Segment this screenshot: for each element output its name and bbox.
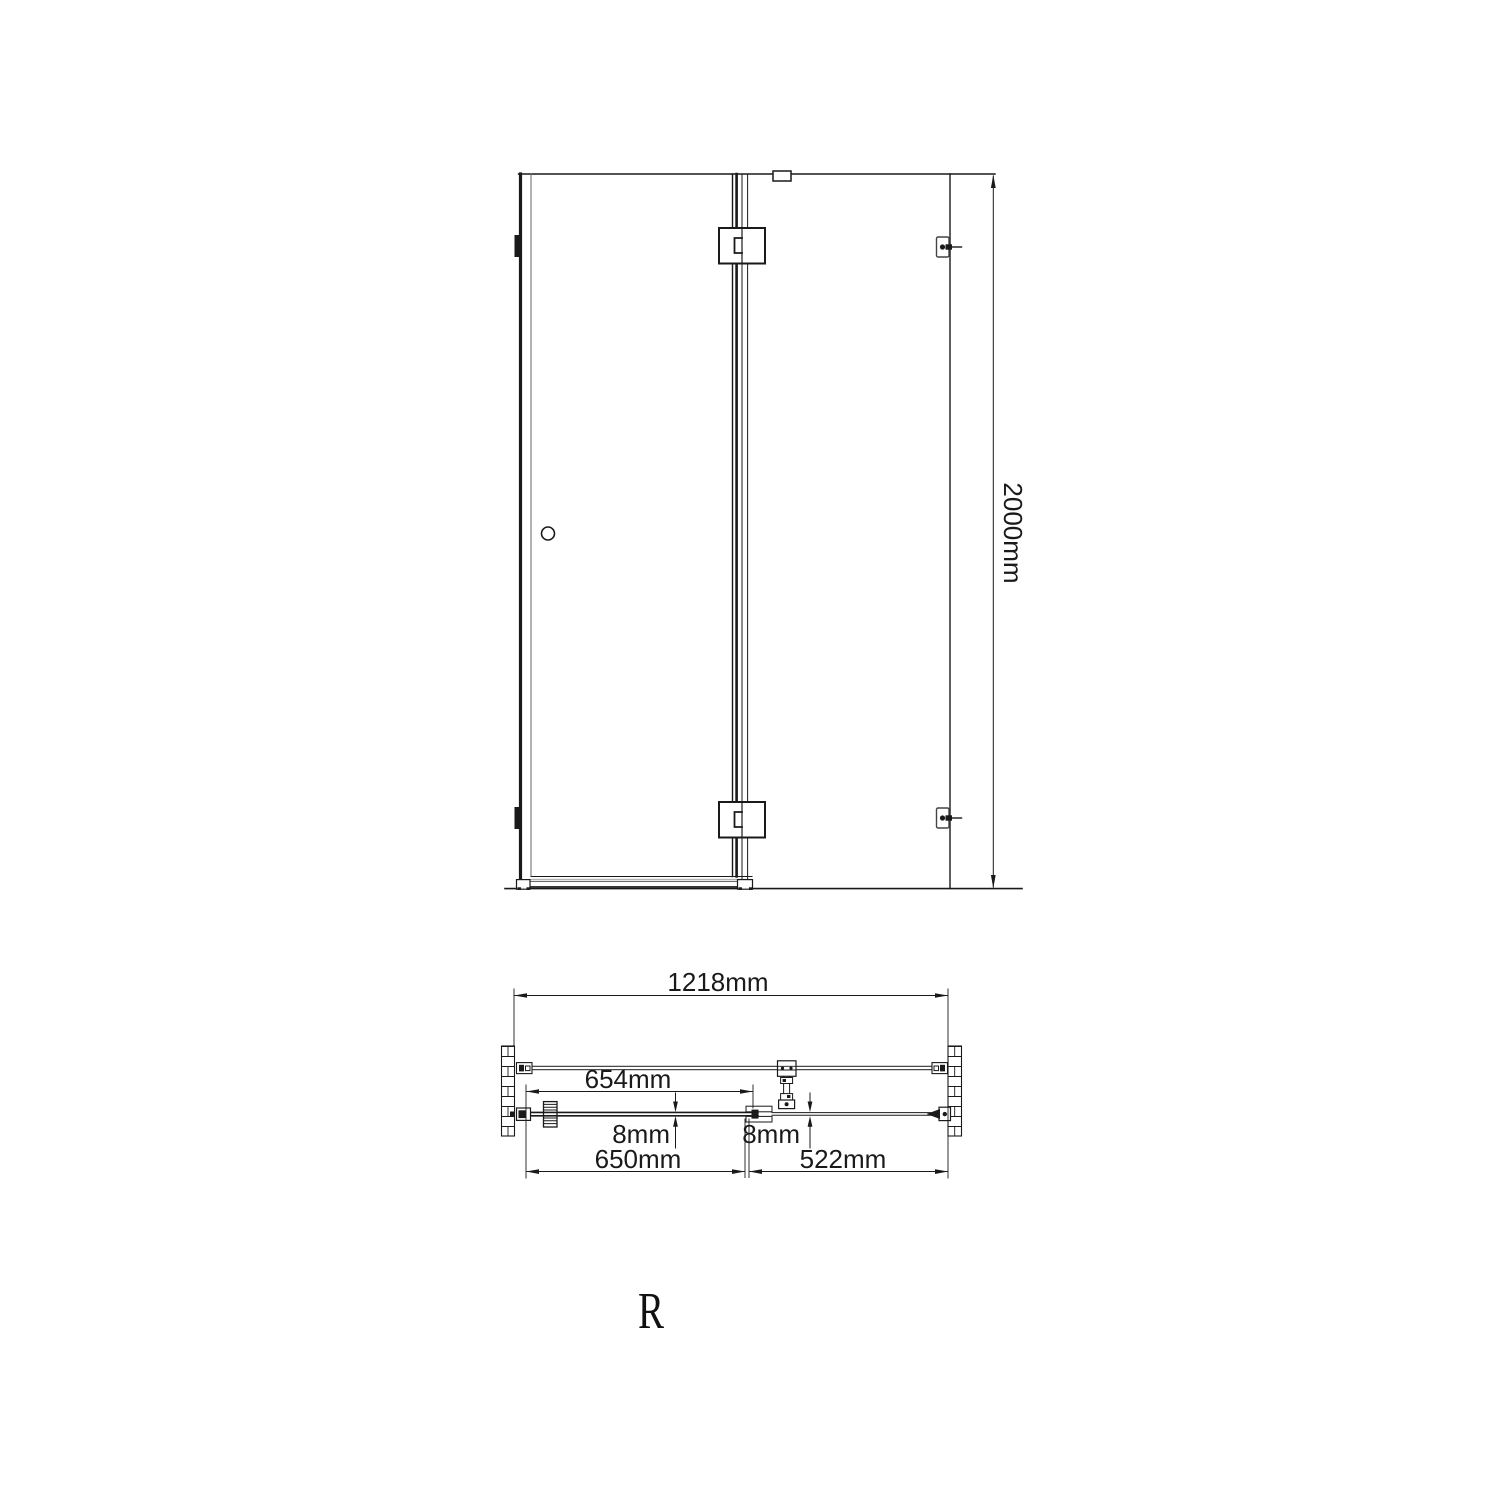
top-hinge	[719, 228, 765, 264]
side-panel-width-label: 522mm	[800, 1144, 887, 1174]
orientation-label: R	[638, 1282, 664, 1340]
height-dimension-label: 2000mm	[998, 482, 1028, 583]
technical-drawing-page: 2000mm	[0, 0, 1500, 1500]
left-wall-section	[502, 1046, 515, 1136]
panel-wall-bracket-bottom	[937, 808, 962, 828]
door-glass-plan	[531, 1112, 759, 1115]
door-handle-knob	[542, 527, 555, 540]
wall-profile-fixing-top	[515, 235, 521, 257]
right-wall-section	[948, 1046, 962, 1136]
bottom-hinge	[719, 802, 765, 838]
panel-glass-plan	[772, 1113, 931, 1116]
plan-view: 1218mm 654mm 8mm 8mm	[502, 967, 962, 1178]
support-bar-glass-connector	[778, 1061, 797, 1109]
door-handle-plan	[544, 1102, 558, 1127]
front-elevation-view: 2000mm	[505, 171, 1028, 890]
hinge-offset-label: 654mm	[585, 1064, 672, 1094]
panel-glass-thickness-label: 8mm	[742, 1119, 800, 1149]
support-bar-wall-bracket-left	[517, 1063, 533, 1074]
wall-profile-fixing-bottom	[515, 807, 521, 829]
overall-width-label: 1218mm	[667, 967, 768, 997]
panel-wall-bracket-plan	[927, 1107, 951, 1120]
support-bar-end-clip	[773, 171, 791, 181]
shower-enclosure-technical-drawing: 2000mm	[0, 0, 1500, 1500]
door-width-label: 650mm	[595, 1144, 682, 1174]
support-bar-wall-bracket-right	[932, 1063, 948, 1074]
height-dimension: 2000mm	[991, 175, 1028, 889]
panel-wall-bracket-top	[937, 237, 962, 257]
door-glass-thickness-dimension: 8mm	[612, 1093, 678, 1149]
